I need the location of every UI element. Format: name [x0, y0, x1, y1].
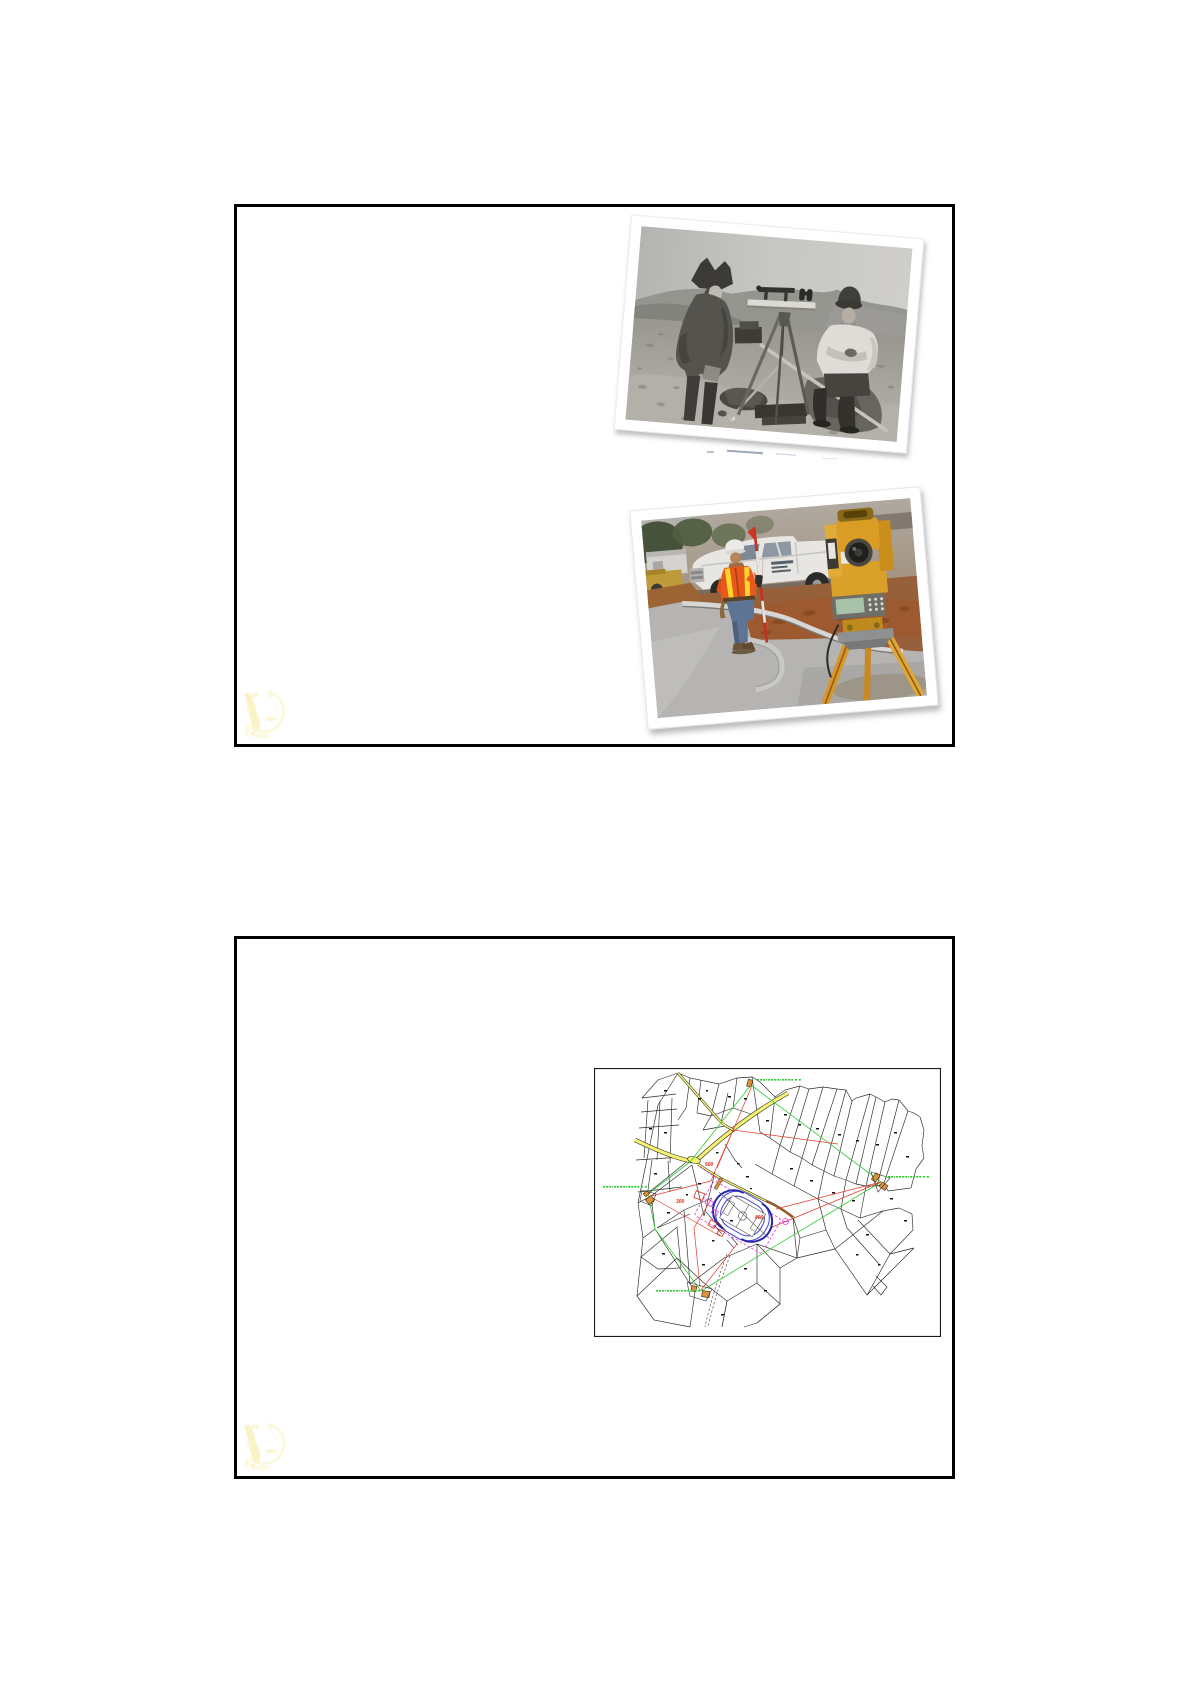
svg-text:500: 500: [705, 1162, 714, 1168]
svg-text:400: 400: [754, 1215, 764, 1221]
svg-text:300: 300: [676, 1199, 685, 1205]
